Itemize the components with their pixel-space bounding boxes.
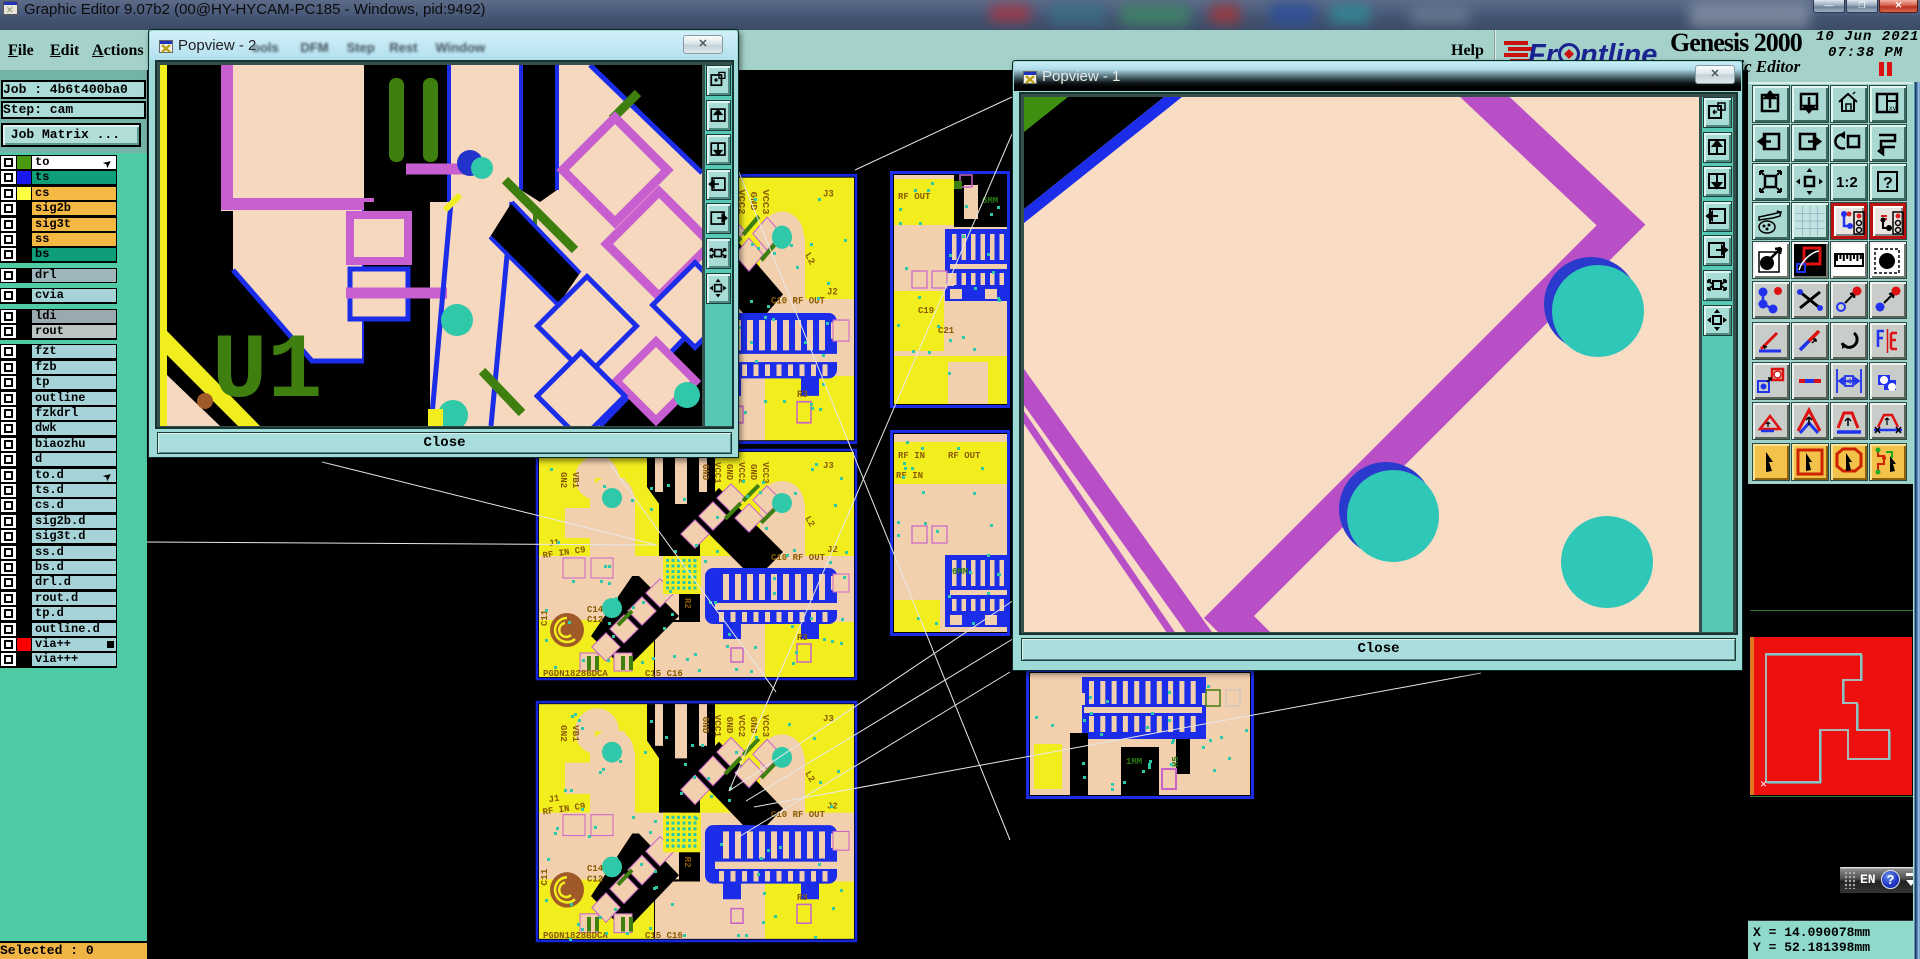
svg-text:R3: R3 bbox=[797, 892, 808, 903]
svg-text:×: × bbox=[1760, 777, 1767, 791]
svg-text:4: 4 bbox=[1847, 378, 1852, 387]
svg-text:R2: R2 bbox=[682, 856, 693, 867]
svg-text:C15 C16: C15 C16 bbox=[645, 930, 683, 941]
svg-text:GND: GND bbox=[724, 464, 734, 481]
svg-text:6MM: 6MM bbox=[952, 567, 968, 577]
svg-text:VCC1: VCC1 bbox=[712, 462, 722, 484]
svg-text:PGDN1828BDCA: PGDN1828BDCA bbox=[543, 930, 608, 941]
svg-text:GN2: GN2 bbox=[558, 725, 569, 742]
svg-text:U1: U1 bbox=[212, 319, 322, 424]
svg-text:RF IN: RF IN bbox=[896, 471, 923, 481]
svg-text:C10 RF OUT: C10 RF OUT bbox=[771, 809, 825, 820]
svg-text:1:2: 1:2 bbox=[1836, 174, 1858, 191]
svg-text:C14: C14 bbox=[587, 605, 604, 615]
svg-text:PGDN1828BDCA: PGDN1828BDCA bbox=[543, 669, 608, 679]
svg-text:J3: J3 bbox=[823, 188, 834, 200]
svg-text:C10 RF OUT: C10 RF OUT bbox=[771, 295, 825, 307]
svg-text:1MM: 1MM bbox=[1126, 757, 1142, 767]
svg-text:GND: GND bbox=[700, 717, 711, 734]
svg-text:C12: C12 bbox=[587, 615, 603, 625]
svg-text:VCC2: VCC2 bbox=[736, 715, 747, 738]
svg-text:VCC3: VCC3 bbox=[760, 715, 771, 738]
svg-text:GND: GND bbox=[748, 464, 758, 481]
svg-text:C10 RF OUT: C10 RF OUT bbox=[771, 553, 826, 563]
svg-text:VCC3: VCC3 bbox=[760, 189, 770, 214]
svg-text:J3: J3 bbox=[823, 713, 834, 724]
svg-text:xy: xy bbox=[1889, 105, 1897, 112]
svg-text:VCC1: VCC1 bbox=[712, 715, 723, 738]
svg-text:R3: R3 bbox=[797, 633, 808, 643]
svg-text:GND: GND bbox=[724, 717, 735, 734]
svg-text:J3: J3 bbox=[823, 461, 834, 471]
svg-text:C12: C12 bbox=[587, 873, 603, 884]
svg-text:C21: C21 bbox=[938, 326, 955, 336]
svg-text:VB1: VB1 bbox=[570, 725, 581, 742]
svg-text:C11: C11 bbox=[539, 868, 550, 885]
svg-text:VB1: VB1 bbox=[570, 472, 580, 489]
svg-text:RF IN: RF IN bbox=[898, 451, 925, 461]
svg-text:C15 C16: C15 C16 bbox=[645, 669, 683, 679]
svg-text:GN2: GN2 bbox=[558, 472, 568, 488]
svg-text:J2: J2 bbox=[827, 286, 838, 298]
svg-text:?: ? bbox=[1883, 175, 1893, 192]
svg-text:C19: C19 bbox=[918, 306, 934, 316]
svg-text:GND: GND bbox=[700, 464, 710, 481]
svg-text:RF OUT: RF OUT bbox=[948, 451, 981, 461]
svg-text:RF OUT: RF OUT bbox=[898, 192, 931, 202]
svg-text:R2: R2 bbox=[682, 598, 692, 609]
svg-text:R3: R3 bbox=[797, 388, 808, 400]
svg-text:VCC3: VCC3 bbox=[760, 462, 770, 484]
